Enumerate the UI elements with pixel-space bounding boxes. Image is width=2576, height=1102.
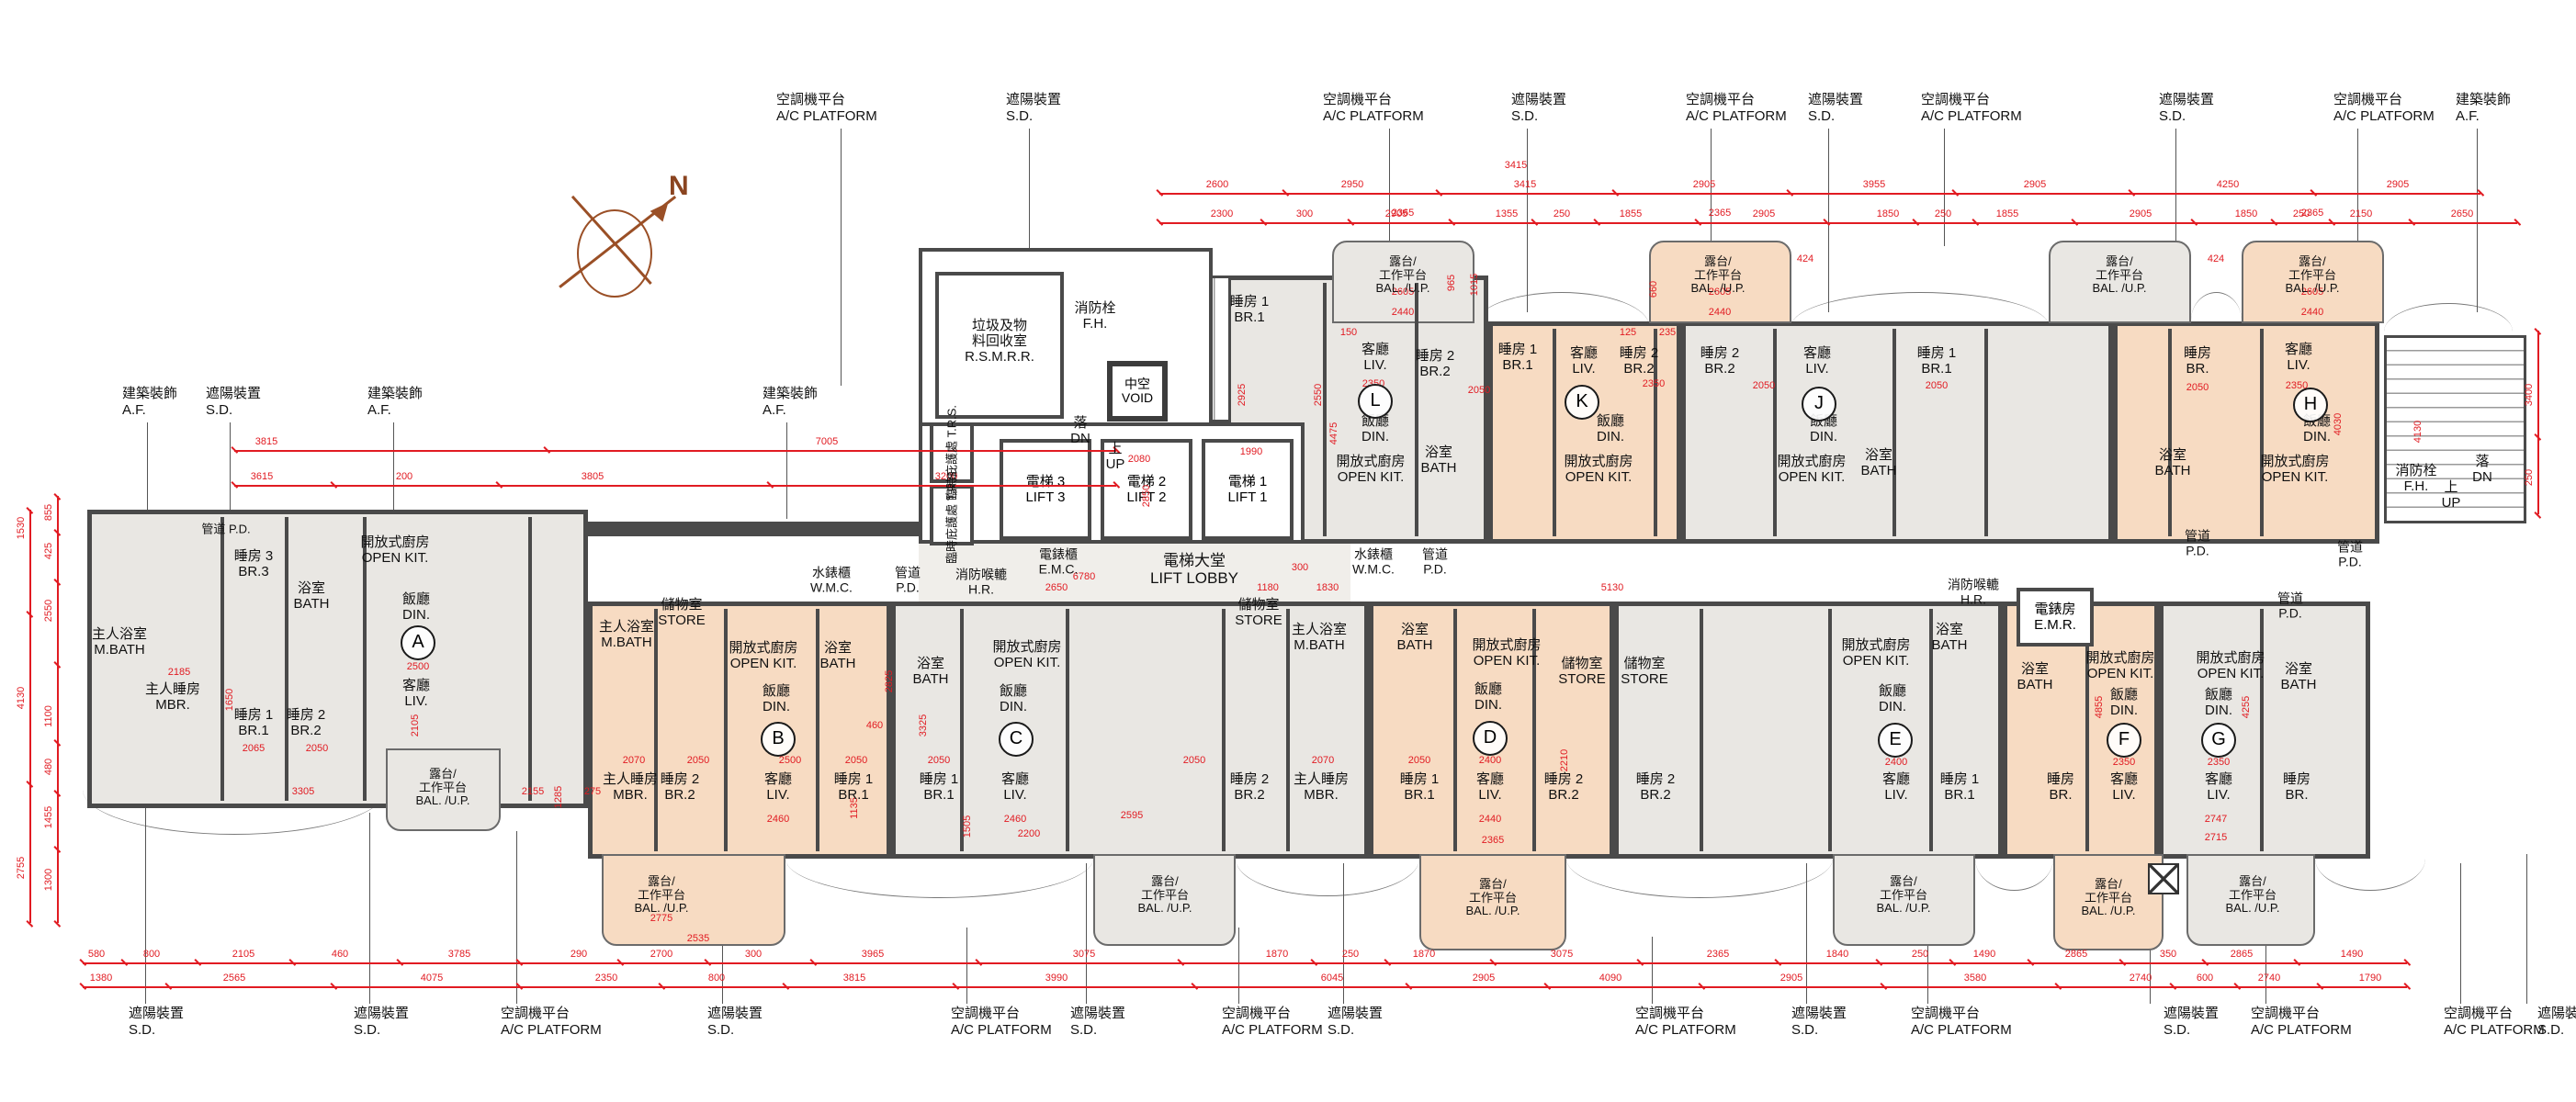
leader-line <box>1238 928 1239 1004</box>
lift-3-shaft: 電梯 3LIFT 3 <box>1000 439 1091 540</box>
dim-value: 2050 <box>687 755 709 766</box>
facade-curve <box>2315 859 2425 891</box>
unit-C-partition <box>1066 609 1069 851</box>
dim-value: 2440 <box>1392 307 1414 318</box>
floor-plan-canvas: N 垃圾及物料回收室R.S.M.R.R. 中空VOID 電梯 3LIFT 3 電… <box>0 0 2576 1102</box>
unit-C-room-br1: 睡房 1BR.1 <box>920 772 959 804</box>
unit-L-partition <box>1415 283 1418 536</box>
dim-value: 200 <box>396 471 412 482</box>
dim-value: 800 <box>708 973 725 984</box>
unit-H-room-bath: 浴室BATH <box>2155 448 2191 479</box>
unit-D-room-br2: 睡房 2BR.2 <box>1544 772 1584 804</box>
annotation-en: A/C PLATFORM <box>2444 1022 2545 1039</box>
dim-value: 4130 <box>16 687 27 709</box>
annotation-cn: 遮陽裝置 <box>1070 1006 1125 1022</box>
service-label: 落DN <box>2472 455 2492 486</box>
annotation-en: A/C PLATFORM <box>1635 1022 1736 1039</box>
annotation-cn: 建築裝飾 <box>2456 92 2511 108</box>
dim-value: 3815 <box>843 973 865 984</box>
service-label: 水錶櫃W.M.C. <box>810 566 853 594</box>
dim-value: 2350 <box>2113 757 2135 768</box>
leader-line <box>1086 863 1087 1004</box>
dim-value: 4250 <box>2217 179 2239 190</box>
service-label: 管道P.D. <box>2185 529 2210 557</box>
annotation-bottom-6: 空調機平台A/C PLATFORM <box>1222 1006 1323 1039</box>
unit-K-room-br2: 睡房 2BR.2 <box>1620 346 1659 377</box>
annotation-cn: 空調機平台 <box>1323 92 1424 108</box>
annotation-cn: 空調機平台 <box>2251 1006 2352 1022</box>
unit-C-room-liv: 客廳LIV. <box>1001 772 1029 804</box>
annotation-en: A/C PLATFORM <box>1222 1022 1323 1039</box>
unit-E-room-bath: 浴室BATH <box>1932 623 1968 654</box>
annotation-cn: 遮陽裝置 <box>2164 1006 2219 1022</box>
annotation-top-2: 空調機平台A/C PLATFORM <box>1323 92 1424 125</box>
annotation-en: A/C PLATFORM <box>2251 1022 2352 1039</box>
dim-value: 2200 <box>1018 828 1040 839</box>
unit-G-room-openkit: 開放式廚房OPEN KIT. <box>2196 651 2265 682</box>
unit-E-partition <box>1828 609 1832 851</box>
dim-chain-7 <box>57 496 59 923</box>
unit-F-circle: F <box>2107 723 2141 758</box>
unit-L-room-br2: 睡房 2BR.2 <box>1416 349 1455 380</box>
refuse-room-label: 垃圾及物料回收室R.S.M.R.R. <box>965 319 1034 365</box>
dim-chain-4 <box>83 962 2407 964</box>
dim-value: 2365 <box>1392 208 1414 219</box>
unit-A-room-br2: 睡房 2BR.2 <box>287 708 326 739</box>
void-box: 中空VOID <box>1107 361 1168 422</box>
unit-A-partition <box>220 517 224 801</box>
unit-C-room-mbr: 主人睡房MBR. <box>1294 772 1349 804</box>
dim-value: 2755 <box>16 857 27 879</box>
annotation-bottom-7: 遮陽裝置S.D. <box>1328 1006 1383 1039</box>
dim-value: 125 <box>1620 327 1636 338</box>
unit-K-room-openkit: 開放式廚房OPEN KIT. <box>1564 455 1633 486</box>
dim-value: 250 <box>1342 949 1359 960</box>
annotation-bottom-2: 空調機平台A/C PLATFORM <box>501 1006 602 1039</box>
leader-line <box>1652 937 1653 1004</box>
unit-B-balcony <box>602 854 785 946</box>
unit-E-room-br1: 睡房 1BR.1 <box>1940 772 1980 804</box>
north-compass: N <box>551 174 707 321</box>
service-label: 管道P.D. <box>895 566 921 594</box>
dim-value: 2050 <box>1926 380 1948 391</box>
dim-value: 2950 <box>1341 179 1363 190</box>
dim-chain-6 <box>29 510 31 923</box>
annotation-cn: 遮陽裝置 <box>1808 92 1863 108</box>
dim-value: 1180 <box>1257 582 1279 593</box>
unit-L-room-bath: 浴室BATH <box>1421 445 1457 477</box>
facade-curve <box>2384 303 2513 332</box>
service-label: 上UP <box>1106 442 1125 473</box>
unit-E-room-br2: 睡房 2BR.2 <box>1636 772 1676 804</box>
dim-value: 2905 <box>1753 208 1775 219</box>
dim-value: 2050 <box>306 743 328 754</box>
unit-D-partition <box>1453 609 1457 851</box>
dim-value: 2105 <box>410 714 421 737</box>
dim-value: 235 <box>1659 327 1676 338</box>
unit-B-partition <box>724 609 728 851</box>
dim-value: 800 <box>143 949 160 960</box>
dim-value: 660 <box>1648 281 1659 298</box>
dim-value: 2070 <box>1312 755 1334 766</box>
dim-value: 2065 <box>243 743 265 754</box>
annotation-cn: 空調機平台 <box>1222 1006 1323 1022</box>
annotation-en: A/C PLATFORM <box>951 1022 1052 1039</box>
annotation-bottom-14: 遮陽裝置S.D. <box>2537 1006 2576 1039</box>
annotation-bottom-5: 遮陽裝置S.D. <box>1070 1006 1125 1039</box>
dim-value: 3805 <box>582 471 604 482</box>
dim-value: 2350 <box>595 973 617 984</box>
dim-value: 275 <box>584 786 601 797</box>
annotation-top-8: 空調機平台A/C PLATFORM <box>2333 92 2435 125</box>
dim-value: 7005 <box>816 436 838 447</box>
annotation-en: A/C PLATFORM <box>1911 1022 2012 1039</box>
annotation-cn: 空調機平台 <box>2444 1006 2545 1022</box>
dim-value: 3415 <box>1514 179 1536 190</box>
annotation-cn: 空調機平台 <box>1635 1006 1736 1022</box>
unit-C-room-din: 飯廳DIN. <box>1000 684 1027 715</box>
dim-value: 1380 <box>90 973 112 984</box>
dim-value: 2565 <box>223 973 245 984</box>
annotation-top-5: 遮陽裝置S.D. <box>1808 92 1863 125</box>
service-label: 消防栓F.H. <box>2395 464 2436 495</box>
annotation-cn: 空調機平台 <box>1911 1006 2012 1022</box>
dim-value: 300 <box>1296 208 1313 219</box>
dim-value: 3815 <box>255 436 277 447</box>
dim-value: 3990 <box>1045 973 1068 984</box>
dim-value: 4030 <box>2333 413 2344 435</box>
annotation-bottom-0: 遮陽裝置S.D. <box>129 1006 184 1039</box>
dim-value: 2460 <box>1004 814 1026 825</box>
dim-value: 250 <box>1935 208 1951 219</box>
dim-value: 2925 <box>1237 384 1248 406</box>
dim-value: 855 <box>43 504 54 521</box>
leader-line <box>1527 129 1528 312</box>
annotation-left-3: 建築裝飾A.F. <box>763 386 818 419</box>
annotation-cn: 空調機平台 <box>501 1006 602 1022</box>
leader-line <box>393 422 394 514</box>
annotation-cn: 遮陽裝置 <box>206 386 261 402</box>
facade-curve <box>785 859 1093 898</box>
dim-value: 250 <box>1554 208 1570 219</box>
dim-value: 4090 <box>1599 973 1621 984</box>
unit-A-room-mbath: 主人浴室M.BATH <box>92 627 147 658</box>
annotation-en: S.D. <box>1791 1022 1847 1039</box>
dim-value: 2105 <box>232 949 254 960</box>
dim-value: 2050 <box>1183 755 1205 766</box>
unit-G-room-din: 飯廳DIN. <box>2205 688 2232 719</box>
service-label: 消防喉轆H.R. <box>1948 578 1999 606</box>
service-label: 水錶櫃W.M.C. <box>1352 547 1395 576</box>
dim-value: 2905 <box>1780 973 1802 984</box>
dim-value: 2350 <box>1643 378 1665 389</box>
dim-value: 2865 <box>2065 949 2087 960</box>
annotation-en: A.F. <box>763 402 818 419</box>
unit-D-room-liv: 客廳LIV. <box>1476 772 1504 804</box>
annotation-cn: 空調機平台 <box>776 92 877 108</box>
dim-value: 3075 <box>1551 949 1573 960</box>
dim-value: 2740 <box>2258 973 2280 984</box>
leader-line <box>1828 129 1829 312</box>
unit-K-circle: K <box>1565 385 1599 420</box>
annotation-en: A/C PLATFORM <box>776 108 877 125</box>
dim-value: 250 <box>2524 469 2535 486</box>
unit-C-room-bath: 浴室BATH <box>913 657 949 688</box>
unit-E-room-openkit: 開放式廚房OPEN KIT. <box>1841 638 1910 669</box>
dim-value: 300 <box>1292 562 1308 573</box>
dim-value: 250 <box>1912 949 1928 960</box>
unit-A-room-liv: 客廳LIV. <box>402 679 430 710</box>
dim-value: 1840 <box>1826 949 1848 960</box>
dim-chain-2 <box>234 450 1116 452</box>
unit-L-balcony-label: 露台/工作平台BAL. /U.P. <box>1375 255 1429 296</box>
dim-value: 2050 <box>928 755 950 766</box>
dim-value: 1855 <box>1996 208 2018 219</box>
dim-value: 460 <box>866 720 883 731</box>
dim-value: 2500 <box>407 661 429 672</box>
service-label: 消防喉轆H.R. <box>955 568 1007 596</box>
unit-G-room-liv: 客廳LIV. <box>2205 772 2232 804</box>
annotation-left-2: 建築裝飾A.F. <box>367 386 423 419</box>
dim-value: 4475 <box>1328 422 1339 444</box>
annotation-bottom-8: 空調機平台A/C PLATFORM <box>1635 1006 1736 1039</box>
leader-line <box>516 831 517 1004</box>
dim-value: 2365 <box>1709 208 1731 219</box>
dim-value: 2300 <box>1211 208 1233 219</box>
service-label: 電錶櫃E.M.C. <box>1039 547 1079 576</box>
dim-value: 2715 <box>2205 832 2227 843</box>
unit-J-partition <box>1984 329 1988 536</box>
annotation-cn: 遮陽裝置 <box>1791 1006 1847 1022</box>
dim-value: 1490 <box>1973 949 1995 960</box>
dim-value: 600 <box>2197 973 2213 984</box>
dim-value: 2050 <box>1468 385 1490 396</box>
unit-J-block <box>1681 321 2113 544</box>
dim-value: 3615 <box>251 471 273 482</box>
service-label: 管道P.D. <box>2277 591 2303 620</box>
service-label: 消防栓F.H. <box>1074 301 1115 332</box>
dim-value: 2150 <box>2350 208 2372 219</box>
unit-E-balcony-label: 露台/工作平台BAL. /U.P. <box>1876 875 1930 916</box>
unit-C-room-br2: 睡房 2BR.2 <box>1230 772 1270 804</box>
annotation-cn: 遮陽裝置 <box>2159 92 2214 108</box>
leader-line <box>145 808 146 1004</box>
dim-value: 2440 <box>1709 307 1731 318</box>
service-label: 上UP <box>2442 480 2461 512</box>
unit-J-circle: J <box>1802 387 1836 422</box>
dim-value: 2850 <box>1141 485 1152 507</box>
dim-value: 424 <box>2208 253 2224 264</box>
unit-C-room-openkit: 開放式廚房OPEN KIT. <box>992 640 1061 671</box>
unit-B-room-openkit: 開放式廚房OPEN KIT. <box>729 641 797 672</box>
unit-J-room-openkit: 開放式廚房OPEN KIT. <box>1777 455 1846 486</box>
emr-room: 電錶房E.M.R. <box>2017 588 2094 647</box>
unit-A-room-openkit: 開放式廚房OPEN KIT. <box>360 535 429 567</box>
annotation-cn: 遮陽裝置 <box>1006 92 1061 108</box>
dim-value: 2535 <box>687 933 709 944</box>
annotation-en: S.D. <box>1511 108 1566 125</box>
annotation-en: A/C PLATFORM <box>1921 108 2022 125</box>
dim-value: 2210 <box>1559 749 1570 771</box>
annotation-top-7: 遮陽裝置S.D. <box>2159 92 2214 125</box>
unit-D-room-br1: 睡房 1BR.1 <box>1400 772 1440 804</box>
unit-G-room-bath: 浴室BATH <box>2281 662 2317 693</box>
dim-value: 2050 <box>1408 755 1430 766</box>
unit-B-room-liv: 客廳LIV. <box>764 772 792 804</box>
unit-K-room-br1: 睡房 1BR.1 <box>1498 343 1538 374</box>
unit-B-room-br2: 睡房 2BR.2 <box>661 772 700 804</box>
leader-line <box>2460 863 2461 1004</box>
unit-G-room-br: 睡房BR. <box>2283 772 2310 804</box>
unit-J-room-bath: 浴室BATH <box>1861 448 1897 479</box>
dim-value: 2155 <box>522 786 544 797</box>
unit-H-partition <box>2168 329 2172 536</box>
unit-J-partition <box>1773 329 1777 536</box>
unit-F-room-bath: 浴室BATH <box>2017 662 2053 693</box>
leader-line <box>2477 129 2478 312</box>
unit-F-balcony-label: 露台/工作平台BAL. /U.P. <box>2081 878 2135 918</box>
unit-G-block <box>2159 602 2370 859</box>
annotation-top-9: 建築裝飾A.F. <box>2456 92 2511 125</box>
annotation-top-6: 空調機平台A/C PLATFORM <box>1921 92 2022 125</box>
annotation-cn: 空調機平台 <box>2333 92 2435 108</box>
annotation-cn: 遮陽裝置 <box>129 1006 184 1022</box>
unit-A-room-br3: 睡房 3BR.3 <box>234 549 274 580</box>
dim-value: 6045 <box>1321 973 1343 984</box>
dim-value: 2440 <box>1479 814 1501 825</box>
dim-value: 3305 <box>292 786 314 797</box>
unit-H-balcony-label: 露台/工作平台BAL. /U.P. <box>2285 255 2339 296</box>
annotation-en: A.F. <box>122 402 177 419</box>
dim-value: 1855 <box>1620 208 1642 219</box>
unit-K-partition <box>1553 329 1556 536</box>
annotation-cn: 遮陽裝置 <box>1328 1006 1383 1022</box>
dim-value: 580 <box>88 949 105 960</box>
unit-E-circle: E <box>1878 723 1913 758</box>
leader-line <box>841 129 842 386</box>
dim-value: 2365 <box>1482 835 1504 846</box>
service-label: 管道P.D. <box>2337 540 2363 568</box>
unit-L-room-din: 飯廳DIN. <box>1361 414 1389 445</box>
unit-C-room-store: 儲物室STORE <box>1235 598 1282 629</box>
dim-value: 1490 <box>2341 949 2363 960</box>
unit-K-room-din: 飯廳DIN. <box>1597 414 1624 445</box>
annotation-left-0: 建築裝飾A.F. <box>122 386 177 419</box>
unit-A-circle: A <box>401 625 435 660</box>
annotation-en: S.D. <box>1808 108 1863 125</box>
dim-value: 1850 <box>2235 208 2257 219</box>
service-label: 落DN <box>1070 416 1090 447</box>
unit-C-room-mbath: 主人浴室M.BATH <box>1292 623 1347 654</box>
dim-value: 4255 <box>2241 696 2252 718</box>
dim-value: 965 <box>1446 275 1457 291</box>
dim-value: 2050 <box>2186 382 2209 393</box>
unit-L-partition <box>1323 283 1327 536</box>
leader-line <box>2526 854 2527 1004</box>
dim-value: 3785 <box>448 949 470 960</box>
unit-L-room-br1: 睡房 1BR.1 <box>1230 295 1270 326</box>
leader-line <box>1944 129 1945 246</box>
unit-J-room-br1: 睡房 1BR.1 <box>1917 346 1957 377</box>
annotation-top-4: 空調機平台A/C PLATFORM <box>1686 92 1787 125</box>
unit-H-partition <box>2260 329 2264 536</box>
annotation-en: S.D. <box>1328 1022 1383 1039</box>
dim-value: 3580 <box>1964 973 1986 984</box>
annotation-en: A/C PLATFORM <box>501 1022 602 1039</box>
dim-value: 3965 <box>862 949 884 960</box>
annotation-en: S.D. <box>707 1022 763 1039</box>
leader-line <box>369 813 370 1004</box>
dim-value: 2905 <box>2387 179 2409 190</box>
dim-value: 2650 <box>2451 208 2473 219</box>
dim-value: 2600 <box>1206 179 1228 190</box>
dim-value: 1455 <box>43 806 54 828</box>
annotation-cn: 空調機平台 <box>951 1006 1052 1022</box>
unit-A-room-mbr: 主人睡房MBR. <box>145 682 200 714</box>
unit-C-circle: C <box>999 722 1034 757</box>
annotation-cn: 遮陽裝置 <box>1511 92 1566 108</box>
facade-curve <box>1566 859 1833 898</box>
dim-value: 425 <box>43 543 54 559</box>
annotation-top-1: 遮陽裝置S.D. <box>1006 92 1061 125</box>
unit-A-partition <box>285 517 288 801</box>
annotation-en: S.D. <box>129 1022 184 1039</box>
dim-value: 1870 <box>1413 949 1435 960</box>
dim-value: 1505 <box>962 815 973 838</box>
annotation-bottom-10: 空調機平台A/C PLATFORM <box>1911 1006 2012 1039</box>
unit-C-balcony-label: 露台/工作平台BAL. /U.P. <box>1137 875 1192 916</box>
dim-chain-0 <box>1159 193 2480 195</box>
dim-value: 4855 <box>2094 696 2105 718</box>
north-label: N <box>669 171 689 202</box>
annotation-en: A.F. <box>367 402 423 419</box>
dim-value: 2400 <box>1479 755 1501 766</box>
dim-value: 2550 <box>1313 384 1324 406</box>
service-label: 電梯大堂LIFT LOBBY <box>1150 552 1238 587</box>
dim-value: 2350 <box>2208 757 2230 768</box>
unit-B-room-mbath: 主人浴室M.BATH <box>599 620 654 651</box>
unit-H-room-openkit: 開放式廚房OPEN KIT. <box>2260 455 2329 486</box>
dim-value: 2700 <box>650 949 672 960</box>
annotation-en: S.D. <box>2159 108 2214 125</box>
unit-D-room-store: 儲物室STORE <box>1558 657 1605 688</box>
annotation-top-3: 遮陽裝置S.D. <box>1511 92 1566 125</box>
dim-value: 1530 <box>16 517 27 539</box>
annotation-en: S.D. <box>2164 1022 2219 1039</box>
unit-A-balcony-label: 露台/工作平台BAL. /U.P. <box>415 768 469 808</box>
annotation-en: A/C PLATFORM <box>1323 108 1424 125</box>
dim-value: 1790 <box>2359 973 2381 984</box>
unit-E-room-liv: 客廳LIV. <box>1882 772 1910 804</box>
annotation-en: S.D. <box>1006 108 1061 125</box>
dim-value: 2460 <box>767 814 789 825</box>
dim-value: 1870 <box>1266 949 1288 960</box>
unit-D-room-din: 飯廳DIN. <box>1474 682 1502 714</box>
annotation-bottom-11: 遮陽裝置S.D. <box>2164 1006 2219 1039</box>
dim-value: 2050 <box>845 755 867 766</box>
annotation-cn: 建築裝飾 <box>122 386 177 402</box>
annotation-en: A/C PLATFORM <box>1686 108 1787 125</box>
facade-curve <box>1236 859 1419 896</box>
annotation-en: S.D. <box>354 1022 409 1039</box>
annotation-cn: 建築裝飾 <box>367 386 423 402</box>
annotation-en: S.D. <box>1070 1022 1125 1039</box>
annotation-cn: 遮陽裝置 <box>354 1006 409 1022</box>
service-label: 臨時庇護處 T.R.S. <box>946 468 960 564</box>
unit-B-room-din: 飯廳DIN. <box>763 684 790 715</box>
leader-line <box>786 422 787 519</box>
dim-value: 2595 <box>1121 810 1143 821</box>
